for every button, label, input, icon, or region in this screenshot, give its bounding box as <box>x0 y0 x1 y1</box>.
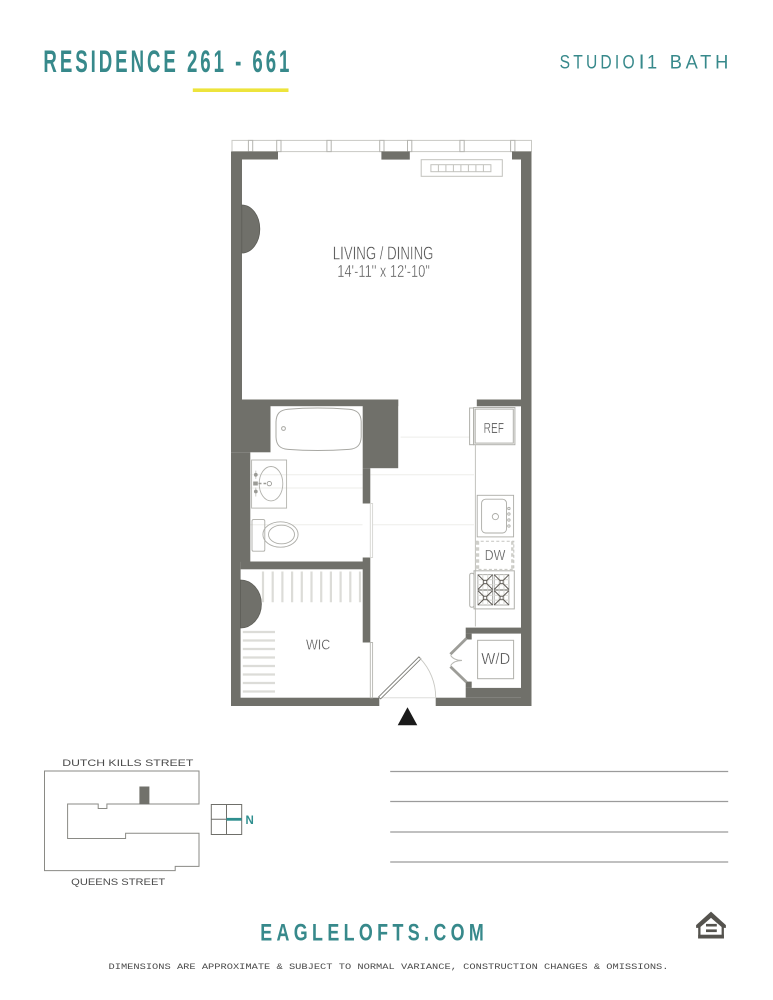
svg-text:14'-11" x 12'-10": 14'-11" x 12'-10" <box>337 261 430 281</box>
svg-text:RESIDENCE 261 - 661: RESIDENCE 261 - 661 <box>43 43 292 79</box>
svg-text:N: N <box>246 815 254 827</box>
svg-text:EAGLELOFTS.COM: EAGLELOFTS.COM <box>260 919 488 946</box>
svg-text:DUTCH KILLS STREET: DUTCH KILLS STREET <box>62 758 194 768</box>
svg-text:QUEENS STREET: QUEENS STREET <box>71 877 166 887</box>
svg-text:DW: DW <box>485 547 506 564</box>
svg-text:STUDIO: STUDIO <box>560 52 638 74</box>
svg-text:1 BATH: 1 BATH <box>647 52 732 74</box>
svg-text:REF: REF <box>484 420 504 437</box>
svg-text:DIMENSIONS ARE APPROXIMATE & S: DIMENSIONS ARE APPROXIMATE & SUBJECT TO … <box>109 963 669 972</box>
svg-text:W/D: W/D <box>481 651 510 668</box>
svg-text:WIC: WIC <box>306 636 330 653</box>
